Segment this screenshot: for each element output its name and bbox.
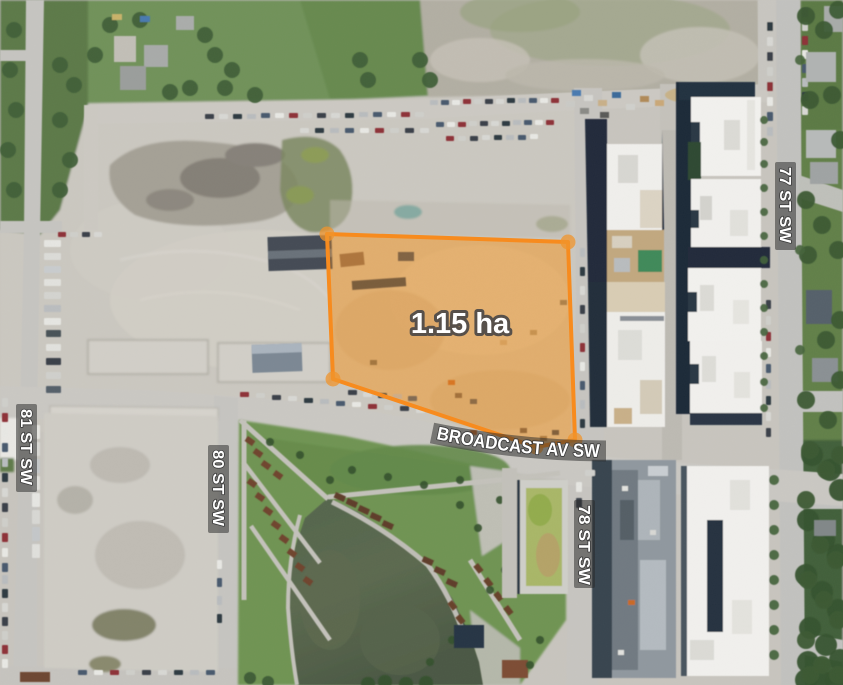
svg-text:81 ST SW: 81 ST SW (17, 409, 34, 486)
svg-text:80 ST SW: 80 ST SW (209, 450, 226, 527)
svg-text:77 ST SW: 77 ST SW (776, 167, 793, 244)
svg-text:78 ST SW: 78 ST SW (575, 505, 592, 586)
svg-text:1.15 ha: 1.15 ha (411, 308, 510, 340)
